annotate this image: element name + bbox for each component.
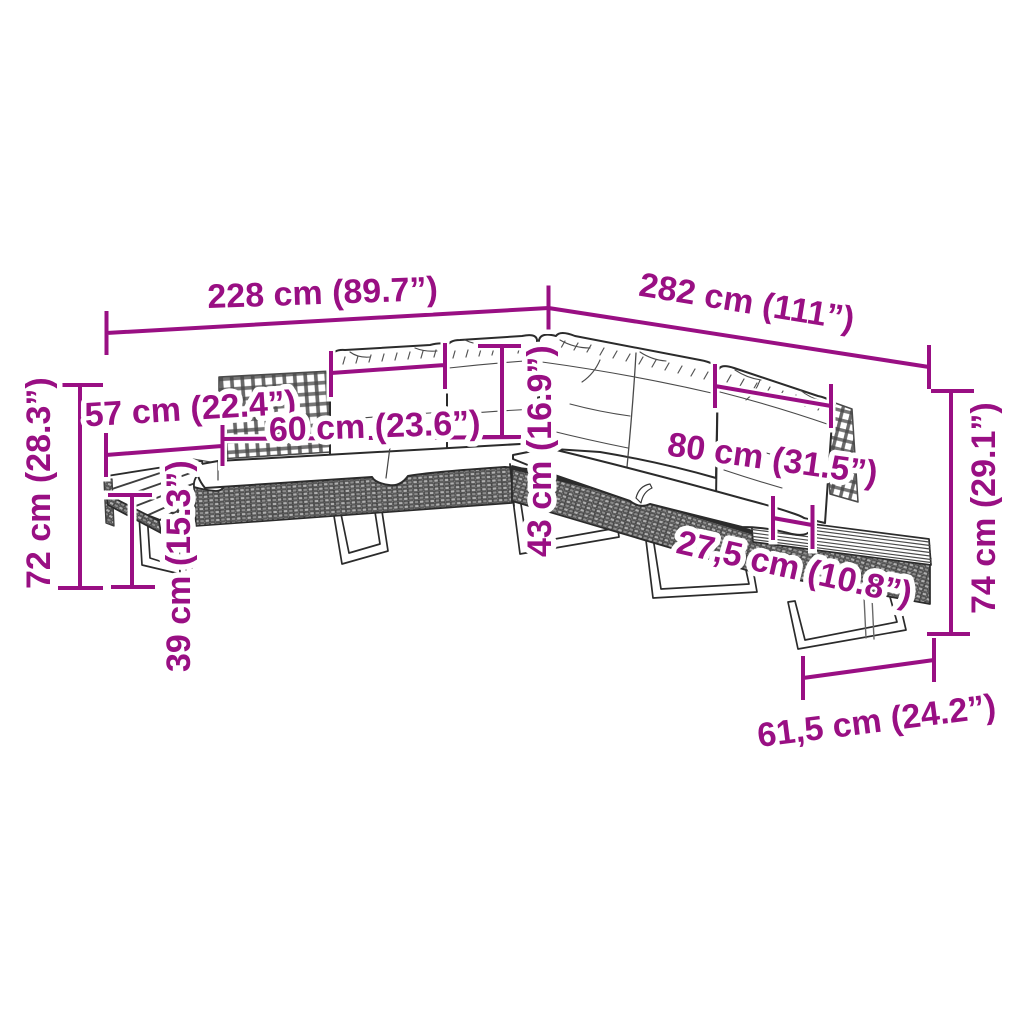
svg-text:74 cm (29.1”): 74 cm (29.1”)	[965, 402, 1003, 614]
svg-text:60 cm (23.6”): 60 cm (23.6”)	[268, 404, 481, 449]
svg-text:228 cm (89.7”): 228 cm (89.7”)	[207, 270, 439, 316]
svg-text:61,5 cm (24.2”): 61,5 cm (24.2”)	[755, 687, 998, 755]
svg-text:43 cm (16.9”): 43 cm (16.9”)	[521, 345, 559, 557]
svg-text:72 cm (28.3”): 72 cm (28.3”)	[20, 377, 58, 589]
svg-text:39 cm (15.3”): 39 cm (15.3”)	[160, 460, 198, 672]
